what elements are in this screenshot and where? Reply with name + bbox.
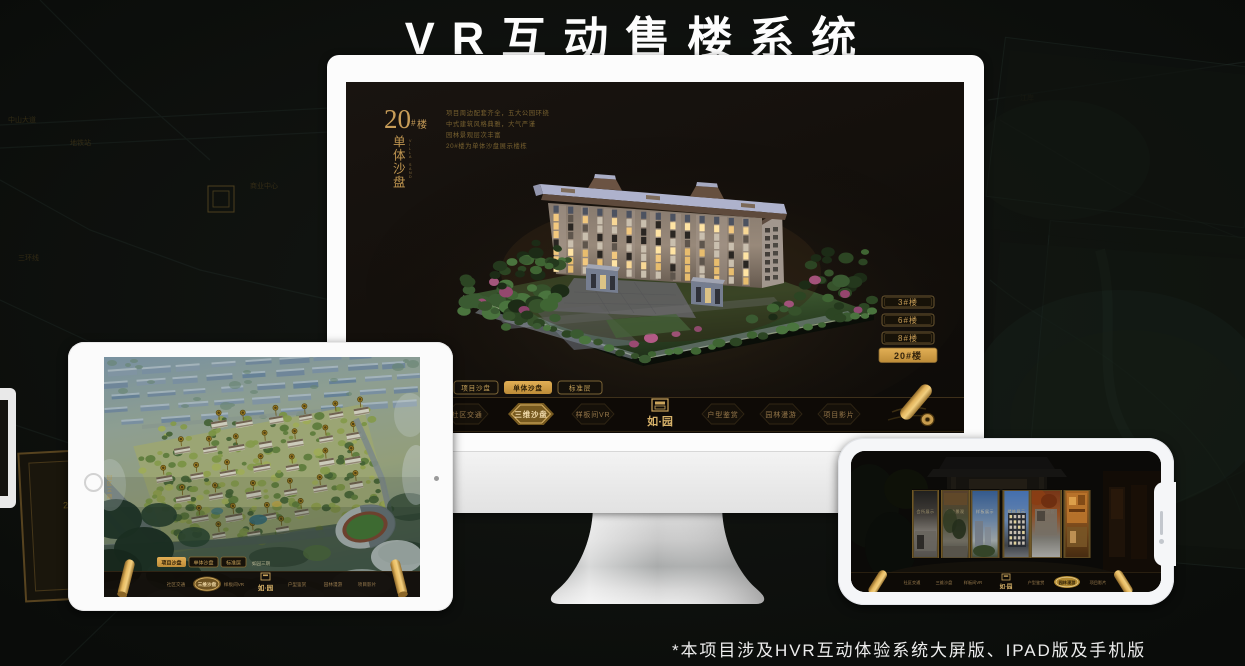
- svg-text:单体沙盘: 单体沙盘: [193, 560, 213, 567]
- svg-text:户型鉴赏: 户型鉴赏: [1028, 579, 1045, 586]
- svg-text:社区交通: 社区交通: [167, 581, 186, 588]
- svg-text:地铁站: 地铁站: [70, 138, 91, 147]
- svg-text:园林漫游: 园林漫游: [765, 410, 796, 419]
- svg-text:园林漫游: 园林漫游: [1059, 579, 1077, 586]
- svg-text:户型鉴赏: 户型鉴赏: [288, 581, 307, 588]
- svg-text:项目影片: 项目影片: [1090, 579, 1107, 586]
- svg-text:项目周边配套齐全，五大公园环绕: 项目周边配套齐全，五大公园环绕: [446, 108, 550, 117]
- svg-text:样板间VR: 样板间VR: [224, 581, 245, 588]
- svg-text:园区三期: 园区三期: [107, 475, 112, 501]
- svg-text:项目沙盘: 项目沙盘: [161, 560, 181, 567]
- svg-text:如园三期: 如园三期: [252, 560, 270, 567]
- svg-text:如·园: 如·园: [258, 583, 274, 592]
- svg-text:项目影片: 项目影片: [358, 581, 377, 588]
- svg-text:项目影片: 项目影片: [823, 410, 854, 419]
- svg-text:社区交通: 社区交通: [904, 579, 922, 586]
- svg-text:A: A: [409, 155, 412, 159]
- svg-text:三环线: 三环线: [18, 253, 39, 262]
- svg-text:三维沙盘: 三维沙盘: [936, 579, 953, 586]
- svg-text:单体沙盘: 单体沙盘: [513, 384, 543, 393]
- svg-text:标准层: 标准层: [226, 560, 241, 567]
- svg-text:中式建筑风格典雅，大气严谨: 中式建筑风格典雅，大气严谨: [446, 119, 536, 128]
- svg-text:中山大道: 中山大道: [8, 115, 36, 124]
- svg-text:8#楼: 8#楼: [898, 333, 918, 343]
- svg-text:20#楼为单体沙盘展示楼栋: 20#楼为单体沙盘展示楼栋: [446, 141, 527, 150]
- svg-text:20#楼: 20#楼: [894, 350, 922, 361]
- svg-text:三维沙盘: 三维沙盘: [198, 581, 217, 588]
- svg-text:园林景观层次丰富: 园林景观层次丰富: [446, 130, 501, 139]
- svg-text:项目沙盘: 项目沙盘: [461, 384, 491, 393]
- svg-text:D: D: [409, 175, 412, 179]
- svg-text:标准层: 标准层: [569, 384, 591, 393]
- svg-text:6#楼: 6#楼: [898, 315, 918, 325]
- svg-text:如·园: 如·园: [1000, 583, 1013, 591]
- svg-text:社区交通: 社区交通: [451, 410, 482, 419]
- svg-text:单体沙盘: 单体沙盘: [393, 135, 406, 190]
- svg-text:三维沙盘: 三维沙盘: [514, 409, 547, 419]
- svg-text:样板间VR: 样板间VR: [576, 410, 611, 419]
- svg-text:商业中心: 商业中心: [250, 181, 278, 190]
- svg-text:楼: 楼: [417, 118, 427, 131]
- svg-text:#: #: [411, 118, 416, 128]
- svg-text:3#楼: 3#楼: [898, 297, 918, 307]
- svg-text:20: 20: [384, 104, 411, 134]
- svg-text:样板间VR: 样板间VR: [964, 579, 982, 586]
- svg-text:园林漫游: 园林漫游: [324, 581, 343, 588]
- svg-text:如·园: 如·园: [647, 414, 673, 428]
- svg-text:户型鉴赏: 户型鉴赏: [707, 410, 738, 419]
